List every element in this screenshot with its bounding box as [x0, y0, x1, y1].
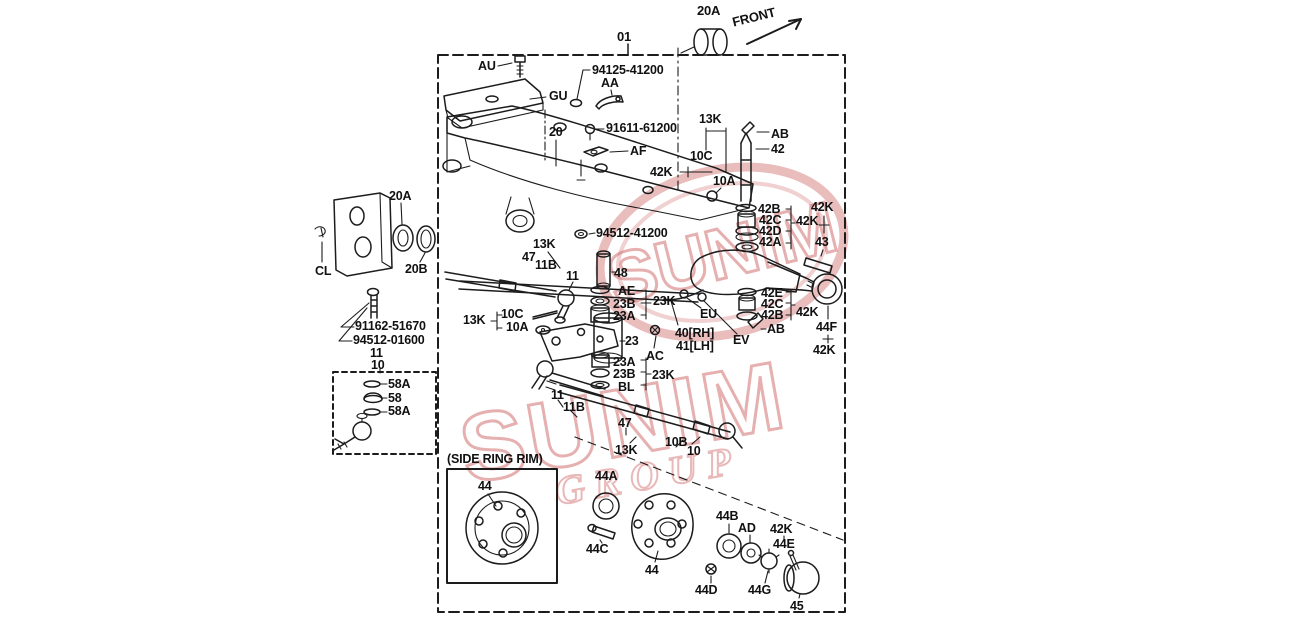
diagram-canvas: SUNIM SUNIM GROUP: [0, 0, 1297, 621]
aa-cam-plate: [596, 90, 623, 109]
strut-rod-42: [741, 122, 769, 201]
camber-bolt: [339, 289, 380, 374]
gu-plate: [444, 79, 546, 160]
tie-rod-kit-58: [334, 381, 387, 450]
parts-diagram: SUNIM SUNIM GROUP: [0, 0, 1297, 621]
af-clip: [584, 147, 628, 156]
cap-45: [784, 562, 819, 598]
nut-94125: [571, 70, 591, 107]
watermark-emblem: SUNIM SUNIM GROUP: [452, 142, 862, 528]
bearing-44b-group: [706, 524, 799, 583]
nut-94512-41200: [575, 230, 595, 238]
bushing-20a-top: [681, 29, 727, 55]
camber-plate-left: [315, 193, 435, 276]
front-arrow: [747, 19, 801, 44]
tie-rod-end-upper: [445, 272, 574, 323]
au-bolt: [498, 56, 525, 77]
side-ring-rim-hub: [466, 492, 538, 564]
